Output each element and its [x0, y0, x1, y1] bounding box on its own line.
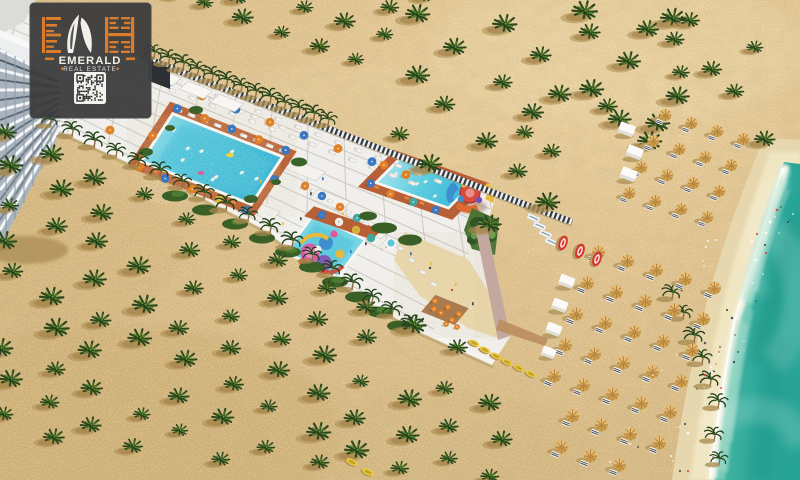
svg-text:REAL ESTATE: REAL ESTATE — [63, 66, 117, 73]
